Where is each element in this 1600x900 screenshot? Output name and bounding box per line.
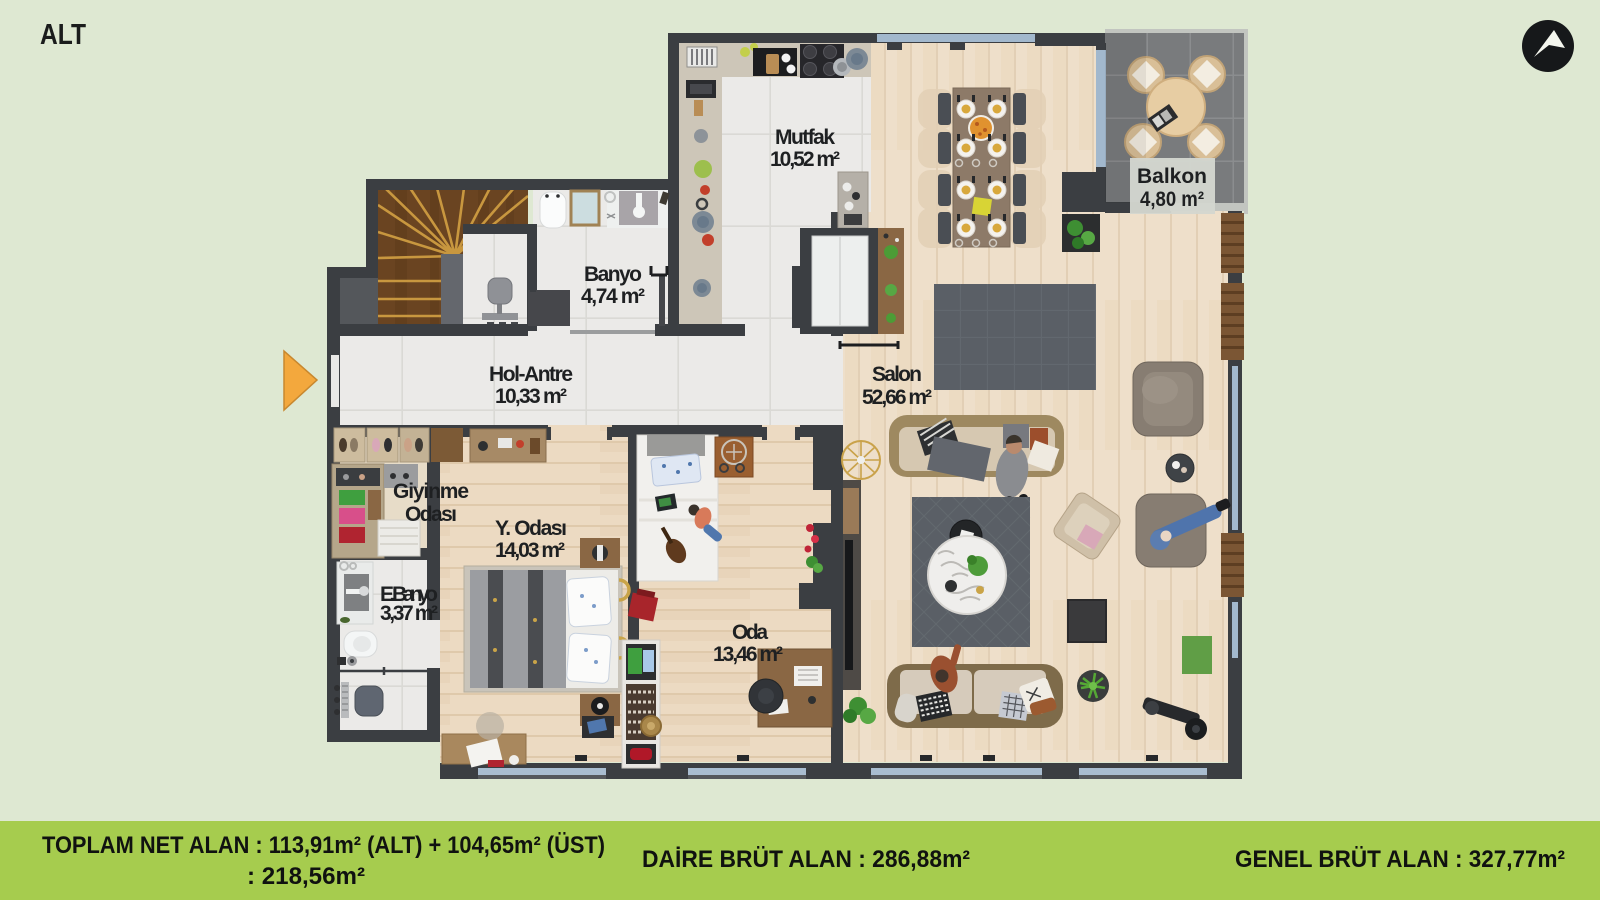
svg-text:Banyo: Banyo <box>584 263 642 286</box>
svg-text:Y. Odası: Y. Odası <box>495 517 567 540</box>
svg-text:13,46 m²: 13,46 m² <box>713 643 783 666</box>
svg-text:10,52 m²: 10,52 m² <box>770 148 840 171</box>
svg-text:Odası: Odası <box>405 503 457 526</box>
svg-text:4,80 m²: 4,80 m² <box>1140 188 1204 211</box>
svg-text:Balkon: Balkon <box>1137 165 1207 188</box>
svg-text:10,33 m²: 10,33 m² <box>495 385 567 408</box>
svg-text:4,74 m²: 4,74 m² <box>581 285 645 308</box>
svg-text:14,03 m²: 14,03 m² <box>495 539 565 562</box>
svg-text:GENEL BRÜT ALAN : 327,77m²: GENEL BRÜT ALAN : 327,77m² <box>1235 846 1565 873</box>
svg-text:DAİRE BRÜT ALAN : 286,88m²: DAİRE BRÜT ALAN : 286,88m² <box>642 846 970 873</box>
svg-text:ALT: ALT <box>40 19 86 51</box>
svg-text:52,66 m²: 52,66 m² <box>862 386 932 409</box>
svg-text:TOPLAM NET ALAN : 113,91m² (AL: TOPLAM NET ALAN : 113,91m² (ALT) + 104,6… <box>42 832 605 859</box>
svg-text:: 218,56m²: : 218,56m² <box>247 863 365 890</box>
svg-text:3,37 m²: 3,37 m² <box>380 602 438 625</box>
svg-text:Giyinme: Giyinme <box>393 480 469 503</box>
svg-text:Hol-Antre: Hol-Antre <box>489 363 573 386</box>
svg-text:Mutfak: Mutfak <box>775 126 835 149</box>
svg-text:Oda: Oda <box>732 621 768 644</box>
svg-text:Salon: Salon <box>872 363 922 386</box>
